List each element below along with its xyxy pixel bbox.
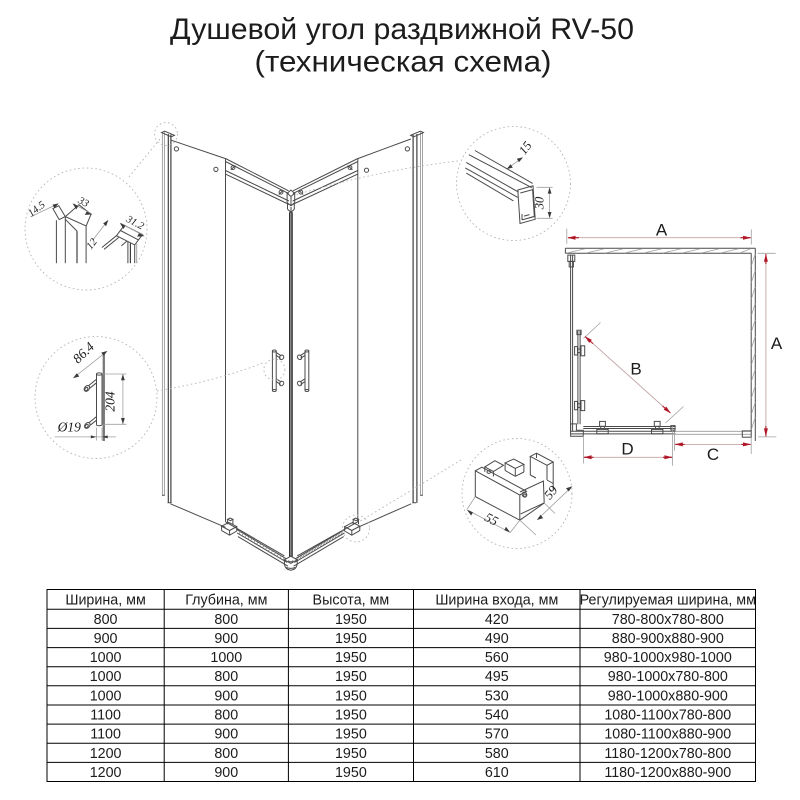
svg-text:880-900х880-900: 880-900х880-900 — [612, 631, 724, 647]
svg-text:1200: 1200 — [90, 765, 122, 781]
svg-text:540: 540 — [485, 708, 509, 724]
svg-text:800: 800 — [214, 669, 238, 685]
svg-text:1950: 1950 — [335, 765, 367, 781]
svg-text:Регулируемая ширина, мм: Регулируемая ширина, мм — [580, 592, 756, 608]
svg-text:1200: 1200 — [90, 746, 122, 762]
svg-text:1100: 1100 — [90, 727, 121, 743]
svg-text:1950: 1950 — [335, 669, 367, 685]
svg-text:900: 900 — [214, 688, 238, 704]
svg-text:1000: 1000 — [90, 650, 122, 666]
svg-text:780-800х780-800: 780-800х780-800 — [612, 612, 724, 628]
svg-text:900: 900 — [214, 727, 238, 743]
svg-text:800: 800 — [214, 708, 238, 724]
svg-text:Ширина входа, мм: Ширина входа, мм — [435, 592, 558, 608]
svg-text:800: 800 — [94, 612, 118, 628]
svg-text:Ширина, мм: Ширина, мм — [65, 592, 145, 608]
svg-text:B: B — [630, 360, 641, 379]
svg-text:204: 204 — [103, 391, 118, 412]
svg-text:570: 570 — [485, 727, 509, 743]
svg-text:1000: 1000 — [90, 688, 122, 704]
svg-text:1950: 1950 — [335, 727, 367, 743]
svg-text:C: C — [707, 445, 719, 464]
svg-text:1080-1100х780-800: 1080-1100х780-800 — [604, 708, 731, 724]
svg-text:580: 580 — [485, 746, 509, 762]
svg-text:420: 420 — [485, 612, 509, 628]
svg-text:1180-1200х880-900: 1180-1200х880-900 — [604, 765, 731, 781]
svg-text:530: 530 — [485, 688, 509, 704]
svg-text:1950: 1950 — [335, 746, 367, 762]
svg-text:1080-1100х880-900: 1080-1100х880-900 — [604, 727, 731, 743]
svg-text:900: 900 — [214, 765, 238, 781]
svg-text:980-1000х980-1000: 980-1000х980-1000 — [604, 650, 732, 666]
svg-text:Ø19: Ø19 — [57, 420, 81, 435]
svg-text:1950: 1950 — [335, 650, 367, 666]
svg-text:A: A — [771, 334, 783, 353]
svg-text:1000: 1000 — [210, 650, 242, 666]
svg-text:610: 610 — [485, 765, 509, 781]
svg-text:1180-1200х780-800: 1180-1200х780-800 — [604, 746, 731, 762]
svg-text:495: 495 — [485, 669, 509, 685]
svg-text:Высота, мм: Высота, мм — [313, 592, 390, 608]
svg-text:900: 900 — [94, 631, 118, 647]
svg-text:D: D — [621, 439, 633, 458]
svg-text:800: 800 — [214, 612, 238, 628]
svg-text:Душевой угол раздвижной RV-50: Душевой угол раздвижной RV-50 — [170, 13, 634, 46]
svg-text:1000: 1000 — [90, 669, 122, 685]
svg-text:800: 800 — [214, 746, 238, 762]
svg-text:1950: 1950 — [335, 631, 367, 647]
svg-text:30: 30 — [533, 196, 547, 210]
svg-text:1950: 1950 — [335, 688, 367, 704]
svg-text:A: A — [656, 221, 668, 240]
svg-text:1950: 1950 — [335, 612, 367, 628]
svg-text:(техническая схема): (техническая схема) — [255, 46, 552, 79]
svg-text:900: 900 — [214, 631, 238, 647]
svg-text:490: 490 — [485, 631, 509, 647]
svg-text:980-1000х780-800: 980-1000х780-800 — [608, 669, 728, 685]
svg-text:560: 560 — [485, 650, 509, 666]
svg-text:1100: 1100 — [90, 708, 121, 724]
svg-text:1950: 1950 — [335, 708, 367, 724]
svg-text:Глубина, мм: Глубина, мм — [185, 592, 267, 608]
svg-text:980-1000х880-900: 980-1000х880-900 — [608, 688, 728, 704]
